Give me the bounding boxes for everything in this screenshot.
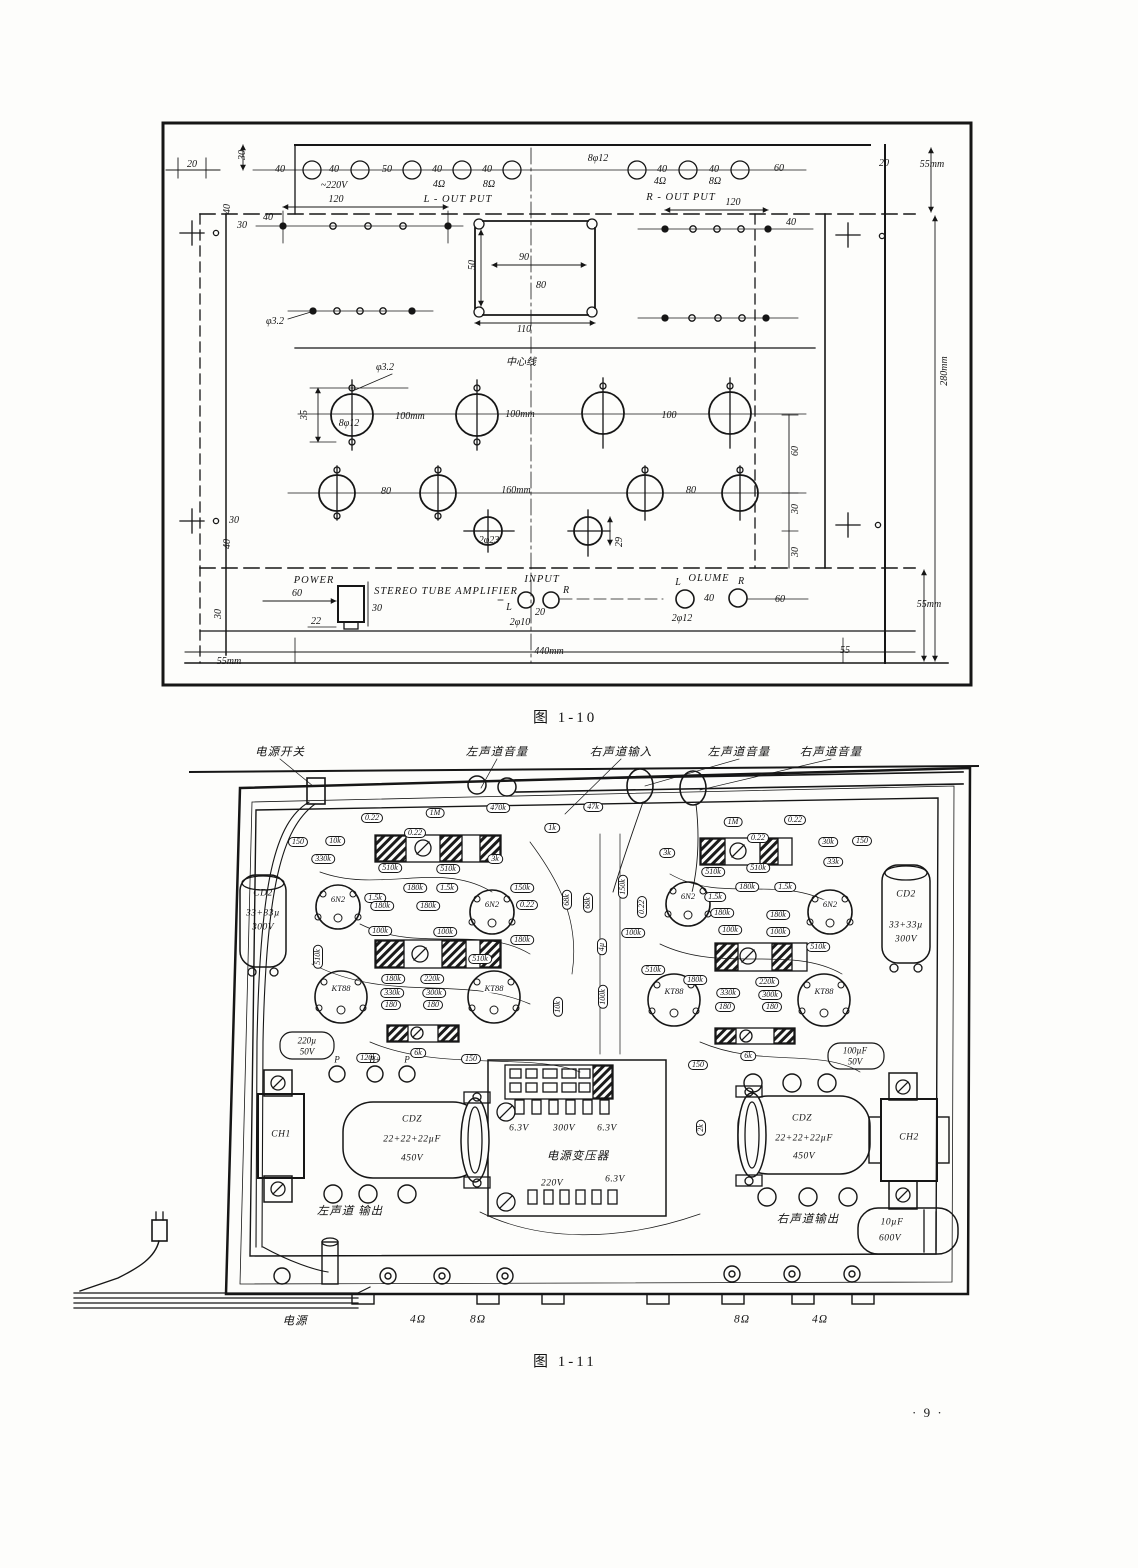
transformer-label: CH2 [899,1133,918,1143]
component-value: 180 [762,1002,782,1012]
dim-label: 50 [382,165,392,175]
component-value: 470k [486,803,510,813]
component-value: 180k [710,908,734,918]
component-value: 1.5k [704,892,726,902]
component-value: 510k [436,864,460,874]
component-value: 0.22 [361,813,383,823]
component-value: 220k [755,977,779,987]
winding-voltage-label: 6.3V [597,1124,617,1134]
dim-label: 60 [292,589,302,599]
capacitor-label: 300V [252,923,274,933]
component-value: 510k [378,863,402,873]
capacitor-label: CDZ [792,1114,812,1124]
dim-label: 280mm [940,356,950,385]
component-value: 100k [766,927,790,937]
component-value: 0.22 [747,833,769,843]
capacitor-label: 600V [879,1234,901,1244]
tube-label: 6N2 [680,892,696,901]
component-value: 100k [598,985,608,1009]
dim-label: 20 [187,160,197,170]
winding-voltage-label: 300V [553,1124,575,1134]
left-output-label: L - OUT PUT [424,195,493,206]
input-label: INPUT [524,575,559,586]
dim-label: 60 [774,164,784,174]
dim-label: 30 [791,504,801,514]
component-value: 0.22 [637,896,647,918]
callout-power-switch: 电源开关 [255,747,305,759]
component-value: 4µ [597,939,607,956]
component-value: 100k [621,928,645,938]
component-value: 150 [688,1060,708,1070]
tube-label: 6N2 [330,895,346,904]
impedance-label: 4Ω [410,1314,426,1326]
component-value: 3k [659,848,675,858]
component-value: 510k [641,965,665,975]
dim-label: 29 [615,537,625,547]
dim-label: 20 [535,608,545,618]
figure-1-10-caption: 图 1-10 [533,706,597,727]
winding-voltage-label: 6.3V [509,1124,529,1134]
capacitor-label: CD2 [896,890,915,900]
component-value: 3k [487,854,503,864]
dim-label: 40 [704,594,714,604]
right-output-label: R - OUT PUT [646,193,715,204]
capacitor-label: 50V [300,1048,315,1057]
impedance-label: 8Ω [483,180,495,190]
component-value: 330k [380,988,404,998]
right-output-label: 右声道输出 [777,1214,840,1226]
power-transformer-label: 电源变压器 [547,1151,610,1163]
component-value: 1.5k [436,883,458,893]
component-value: 510k [746,863,770,873]
component-value: 6k [740,1051,756,1061]
component-value: 150 [852,836,872,846]
channel-letter: L [675,578,681,588]
component-value: 1M [426,808,445,818]
component-value: 180k [416,901,440,911]
component-value: 1M [724,817,743,827]
dim-label: 40 [432,165,442,175]
hole-spec-label: 8φ12 [339,419,360,429]
hole-spec-label: 2φ10 [510,618,531,628]
capacitor-label: 100µF [843,1047,867,1056]
impedance-label: 8Ω [470,1314,486,1326]
dim-label: 30 [372,604,382,614]
dim-label: 80 [536,281,546,291]
component-value: 150 [288,837,308,847]
dim-label: 40 [223,204,233,214]
component-value: 30k [818,837,838,847]
terminal-label: B+ [369,1056,381,1065]
component-value: 150k [510,883,534,893]
dim-label: 30 [237,221,247,231]
component-value: 150k [618,875,628,899]
book-page: { "page": { "number": "· 9 ·" }, "f10": … [0,0,1138,1568]
component-value: 100k [433,927,457,937]
channel-letter: L [506,603,512,613]
component-value: 330k [716,988,740,998]
capacitor-label: 10µF [881,1218,904,1228]
component-value: 510k [806,942,830,952]
mains-label: 电源 [283,1316,308,1328]
dim-label: 110 [517,325,531,335]
dim-label: 100 [662,411,677,421]
component-value: 0.22 [404,828,426,838]
winding-voltage-label: 6.3V [605,1175,625,1185]
dim-label: 40 [657,165,667,175]
dim-label: 40 [709,165,719,175]
component-value: 510k [701,867,725,877]
component-value: 330k [311,854,335,864]
component-value: 1k [544,823,560,833]
component-value: 180k [381,974,405,984]
dim-label: 60 [791,446,801,456]
dim-label: 30 [791,547,801,557]
dim-label: 40 [223,539,233,549]
transformer-label: CH1 [271,1130,290,1140]
component-value: 100k [718,925,742,935]
capacitor-label: 450V [401,1154,423,1164]
centerline-label: 中心线 [506,358,536,368]
component-value: 180k [683,975,707,985]
dim-label: 30 [238,150,248,160]
hole-spec-label: 2φ12 [672,614,693,624]
capacitor-label: 50V [848,1058,863,1067]
dim-label: 160mm [501,486,530,496]
tube-label: KT88 [331,984,352,993]
callout-right-input: 右声道输入 [590,747,653,759]
dim-label: 40 [329,165,339,175]
capacitor-label: 22+22+22µF [775,1134,833,1144]
capacitor-label: 220µ [298,1037,317,1046]
dim-label: 40 [263,213,273,223]
tube-label: KT88 [814,987,835,996]
callout-left-volume: 左声道音量 [708,747,771,759]
dim-label: 55mm [920,160,944,170]
dim-label: 35 [300,410,310,420]
dim-label: 90 [519,253,529,263]
tube-label: 6N2 [822,900,838,909]
component-value: 220k [420,974,444,984]
dim-label: 40 [786,218,796,228]
component-value: 180k [735,882,759,892]
tube-label: KT88 [484,984,505,993]
component-value: 180k [370,901,394,911]
hole-spec-label: 2φ23 [479,536,500,546]
component-value: 10k [325,836,345,846]
dim-label: 40 [482,165,492,175]
left-output-label: 左声道 输出 [317,1206,383,1218]
channel-letter: R [738,577,744,587]
component-value: 47k [583,802,603,812]
dim-label: 120 [329,195,344,205]
channel-letter: R [563,586,569,596]
page-number: · 9 · [912,1405,944,1421]
capacitor-label: 450V [793,1152,815,1162]
component-value: 510k [313,945,323,969]
figure-1-11-layout-drawing: 电源开关 左声道音量 右声道输入 左声道音量 右声道音量 150 10k 330… [60,742,1010,1367]
volume-label: OLUME [688,574,729,585]
tube-label: 6N2 [484,900,500,909]
component-value: 180 [715,1002,735,1012]
figure-1-11-caption: 图 1-11 [533,1350,597,1371]
mains-voltage-label: ~220V [321,181,348,191]
dim-label: 100mm [395,412,424,422]
capacitor-label: 300V [895,935,917,945]
dim-label: 20 [879,159,889,169]
component-value: 150 [461,1054,481,1064]
capacitor-label: CD2 [253,889,272,899]
component-value: 33k [823,857,843,867]
component-value: 180k [510,935,534,945]
component-value: 300k [758,990,782,1000]
amplifier-title-label: STEREO TUBE AMPLIFIER [374,587,518,598]
dim-label: 30 [229,516,239,526]
impedance-label: 8Ω [734,1314,750,1326]
component-value: 100k [368,926,392,936]
component-value: 180 [381,1000,401,1010]
capacitor-label: 33+33µ [246,909,280,919]
component-value: 68k [562,890,572,910]
component-value: 0.22 [516,900,538,910]
dim-label: 80 [381,487,391,497]
dim-label: 55mm [217,657,241,667]
hole-spec-label: φ3.2 [266,317,284,327]
component-value: 180 [423,1000,443,1010]
terminal-label: P [334,1056,340,1065]
callout-left-volume: 左声道音量 [466,747,529,759]
terminal-label: P [404,1056,410,1065]
component-value: 10k [553,997,563,1017]
dim-label: 440mm [534,647,563,657]
power-label: POWER [294,576,335,587]
dim-label: 80 [686,486,696,496]
impedance-label: 4Ω [433,180,445,190]
tube-label: KT88 [664,987,685,996]
component-value: 180k [766,910,790,920]
component-value: 180k [403,883,427,893]
impedance-label: 4Ω [654,177,666,187]
dim-label: 100mm [505,410,534,420]
component-value: 2k [696,1120,706,1136]
impedance-label: 8Ω [709,177,721,187]
component-value: 68k [583,893,593,913]
dim-label: 22 [311,617,321,627]
callout-right-volume: 右声道音量 [800,747,863,759]
winding-voltage-label: 220V [541,1179,563,1189]
dim-label: 40 [275,165,285,175]
dim-label: 120 [726,198,741,208]
capacitor-label: 33+33µ [889,921,923,931]
component-value: 6k [410,1048,426,1058]
panel-drawing-geometry [158,118,980,696]
dim-label: 30 [214,609,224,619]
component-value: 510k [468,954,492,964]
hole-spec-label: 8φ12 [588,154,609,164]
hole-spec-label: φ3.2 [376,363,394,373]
component-value: 0.22 [784,815,806,825]
figure-1-10-panel-drawing: 20 30 40 40 50 40 40 ~220V 4Ω 8Ω 8φ12 40… [158,118,980,696]
dim-label: 60 [775,595,785,605]
component-value: 1.5k [774,882,796,892]
component-value: 300k [422,988,446,998]
capacitor-label: 22+22+22µF [383,1135,441,1145]
dim-label: 55 [840,646,850,656]
dim-label: 50 [468,260,478,270]
dim-label: 55mm [917,600,941,610]
impedance-label: 4Ω [812,1314,828,1326]
capacitor-label: CDZ [402,1115,422,1125]
